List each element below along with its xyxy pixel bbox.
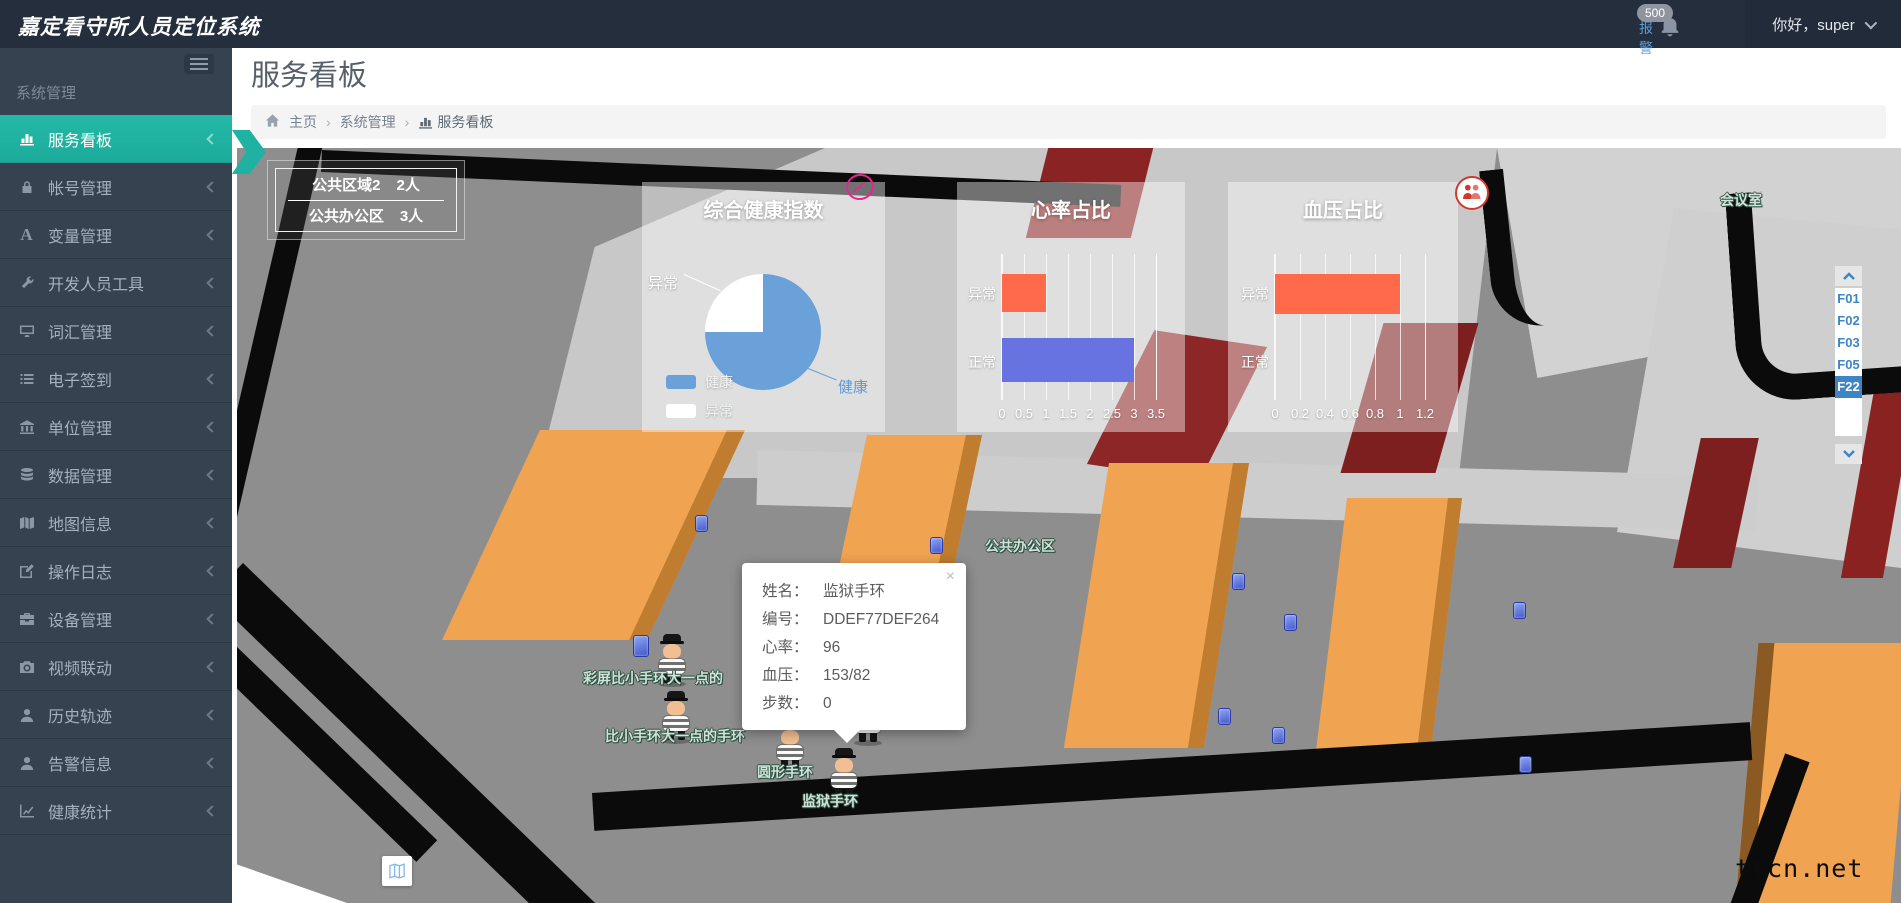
floor-selector: F01 F02 F03 F05 F22 <box>1835 266 1862 464</box>
device-label: 比小手环大一点的手环 <box>605 726 745 746</box>
main-content: 服务看板 主页 › 系统管理 › 服务看板 <box>232 48 1901 903</box>
blood-pressure-plot: 异常 正常 0 0.2 0.4 0.6 0.8 1 1.2 <box>1274 254 1426 400</box>
blood-pressure-panel: 血压占比 异常 正常 0 0.2 0.4 0.6 0.8 1 1.2 <box>1228 182 1458 432</box>
health-index-panel: 综合健康指数 异常 健康 健康 异常 <box>642 182 885 432</box>
floor-item[interactable]: F05 <box>1835 354 1862 376</box>
sidebar-item-history[interactable]: 历史轨迹 <box>0 691 232 739</box>
sidebar-item-mapinfo[interactable]: 地图信息 <box>0 499 232 547</box>
alarm-count-badge: 500 <box>1637 4 1673 22</box>
chevron-left-icon <box>206 373 217 384</box>
breadcrumb-current: 服务看板 <box>418 112 493 132</box>
tag-marker[interactable] <box>1218 708 1231 725</box>
floor-item-selected[interactable]: F22 <box>1835 376 1862 398</box>
sidebar-item-vocabulary[interactable]: 词汇管理 <box>0 307 232 355</box>
database-icon <box>18 466 35 483</box>
tooltip-blood-pressure-value: 153/82 <box>823 662 870 690</box>
map-block-orange <box>1313 498 1462 773</box>
monitor-icon <box>18 322 35 339</box>
area-label: 会议室 <box>1720 190 1762 210</box>
list-icon <box>18 370 35 387</box>
device-label: 监狱手环 <box>802 791 858 811</box>
sidebar-item-devtools[interactable]: 开发人员工具 <box>0 259 232 307</box>
home-icon <box>265 113 280 131</box>
breadcrumb: 主页 › 系统管理 › 服务看板 <box>251 105 1886 139</box>
region-stats-box: 公共区域22人 公共办公区3人 <box>267 160 465 240</box>
chart-title: 血压占比 <box>1228 194 1458 223</box>
tooltip-id-value: DDEF77DEF264 <box>823 606 939 634</box>
x-axis-ticks: 0 0.2 0.4 0.6 0.8 1 1.2 <box>1275 406 1425 422</box>
sidebar-item-health[interactable]: 健康统计 <box>0 787 232 835</box>
user-icon <box>18 754 35 771</box>
page-title: 服务看板 <box>251 52 1901 94</box>
chevron-left-icon <box>206 757 217 768</box>
chevron-left-icon <box>206 661 217 672</box>
user-greeting: 你好，super <box>1772 14 1855 35</box>
lock-icon <box>18 178 35 195</box>
sidebar-item-dashboard[interactable]: 服务看板 <box>0 115 232 163</box>
app-title: 嘉定看守所人员定位系统 <box>18 11 260 41</box>
floor-down-button[interactable] <box>1835 444 1862 464</box>
user-icon <box>18 706 35 723</box>
chart-title: 综合健康指数 <box>642 194 885 223</box>
chevron-left-icon <box>206 133 217 144</box>
tag-marker[interactable] <box>633 635 649 657</box>
bar-normal <box>1002 338 1134 382</box>
floor-item[interactable]: F03 <box>1835 332 1862 354</box>
map-wall-black <box>1479 156 1645 331</box>
bar-chart-icon <box>418 115 433 130</box>
wrench-icon <box>18 274 35 291</box>
pie-callout-abnormal: 异常 <box>648 272 678 293</box>
breadcrumb-section[interactable]: 系统管理 <box>340 112 396 132</box>
tag-marker[interactable] <box>930 537 943 554</box>
bank-icon <box>18 418 35 435</box>
chevron-left-icon <box>206 421 217 432</box>
chevron-left-icon <box>206 805 217 816</box>
sidebar: 系统管理 服务看板 帐号管理 A 变量管理 开发人员工具 词汇管理 <box>0 48 232 903</box>
font-icon: A <box>18 226 35 243</box>
region-stat-row: 公共办公区3人 <box>276 201 456 232</box>
map-wall-black <box>1725 182 1901 403</box>
sidebar-item-data[interactable]: 数据管理 <box>0 451 232 499</box>
trend-icon <box>18 802 35 819</box>
close-icon[interactable]: × <box>946 569 955 585</box>
legend-swatch <box>666 375 696 389</box>
chevron-left-icon <box>206 469 217 480</box>
edit-icon <box>18 562 35 579</box>
region-stat-row: 公共区域22人 <box>276 169 456 200</box>
device-label: 彩屏比小手环大一点的 <box>583 668 723 688</box>
alarm-link[interactable]: 报警 <box>1639 18 1653 58</box>
sidebar-item-units[interactable]: 单位管理 <box>0 403 232 451</box>
map-block-orange <box>442 430 745 640</box>
briefcase-icon <box>18 610 35 627</box>
tooltip-steps-value: 0 <box>823 690 832 718</box>
menu-toggle-button[interactable] <box>184 54 214 74</box>
floor-list: F01 F02 F03 F05 F22 <box>1835 288 1862 436</box>
sidebar-item-alarms[interactable]: 告警信息 <box>0 739 232 787</box>
map-corner-white <box>237 848 347 903</box>
tag-marker[interactable] <box>1284 614 1297 631</box>
chevron-left-icon <box>206 613 217 624</box>
heart-rate-panel: 心率占比 异常 正常 0 0.5 1 1.5 2 2.5 3 3.5 <box>957 182 1185 432</box>
sidebar-item-devices[interactable]: 设备管理 <box>0 595 232 643</box>
watermark: ttcn.net <box>1735 854 1863 883</box>
camera-icon <box>18 658 35 675</box>
chevron-left-icon <box>206 517 217 528</box>
minimap-button[interactable] <box>382 856 412 886</box>
tag-marker[interactable] <box>1232 573 1245 590</box>
device-tooltip: × 姓名：监狱手环 编号：DDEF77DEF264 心率：96 血压：153/8… <box>742 563 966 730</box>
tag-marker[interactable] <box>695 515 708 532</box>
sidebar-item-esign[interactable]: 电子签到 <box>0 355 232 403</box>
floor-up-button[interactable] <box>1835 266 1862 286</box>
breadcrumb-home[interactable]: 主页 <box>289 112 317 132</box>
sidebar-item-accounts[interactable]: 帐号管理 <box>0 163 232 211</box>
user-menu[interactable]: 你好，super <box>1745 0 1901 48</box>
chevron-left-icon <box>206 565 217 576</box>
tooltip-heart-rate-value: 96 <box>823 634 840 662</box>
chevron-left-icon <box>206 181 217 192</box>
chevron-down-icon <box>1864 16 1877 29</box>
top-header: 嘉定看守所人员定位系统 报警 500 你好，super <box>0 0 1901 48</box>
floor-item[interactable]: F02 <box>1835 310 1862 332</box>
floor-item[interactable]: F01 <box>1835 288 1862 310</box>
people-count-icon[interactable] <box>1455 176 1489 210</box>
sidebar-item-oplog[interactable]: 操作日志 <box>0 547 232 595</box>
bar-chart-icon <box>18 130 35 147</box>
map-icon <box>18 514 35 531</box>
chevron-left-icon <box>206 277 217 288</box>
app-root: 嘉定看守所人员定位系统 报警 500 你好，super 系统管理 服务看板 帐号… <box>0 0 1901 903</box>
floor-map-3d[interactable]: 公共区域22人 公共办公区3人 综合健康指数 异常 健康 健康 异 <box>237 148 1901 903</box>
chevron-left-icon <box>206 229 217 240</box>
sidebar-menu: 服务看板 帐号管理 A 变量管理 开发人员工具 词汇管理 电子签到 <box>0 115 232 835</box>
bar-abnormal <box>1002 274 1046 312</box>
pie-callout-health: 健康 <box>838 376 868 397</box>
legend-swatch <box>666 404 696 418</box>
sidebar-item-variables[interactable]: A 变量管理 <box>0 211 232 259</box>
tag-marker[interactable] <box>1272 727 1285 744</box>
device-label: 圆形手环 <box>757 762 813 782</box>
tooltip-name-value: 监狱手环 <box>823 578 885 606</box>
heart-rate-plot: 异常 正常 0 0.5 1 1.5 2 2.5 3 3.5 <box>1001 254 1157 400</box>
tag-marker[interactable] <box>1519 756 1532 773</box>
chevron-left-icon <box>206 709 217 720</box>
chevron-left-icon <box>206 325 217 336</box>
bar-abnormal <box>1275 274 1400 314</box>
pie-legend: 健康 异常 <box>666 372 733 421</box>
area-label: 公共办公区 <box>985 536 1055 556</box>
x-axis-ticks: 0 0.5 1 1.5 2 2.5 3 3.5 <box>1002 406 1156 422</box>
chart-title: 心率占比 <box>957 194 1185 223</box>
sidebar-item-video[interactable]: 视频联动 <box>0 643 232 691</box>
tag-marker[interactable] <box>1513 602 1526 619</box>
